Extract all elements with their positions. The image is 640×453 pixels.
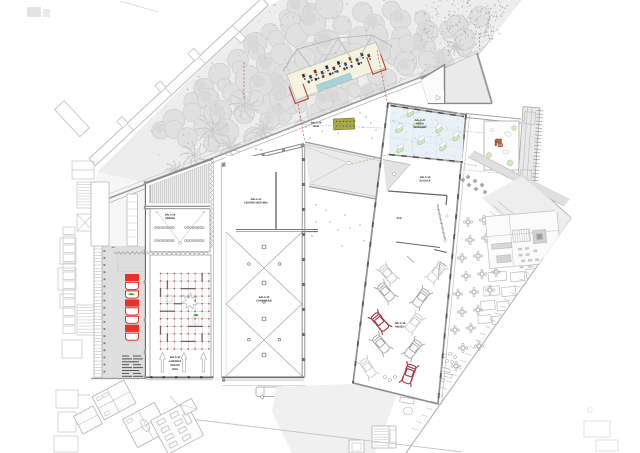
svg-text:CONGRESSI: CONGRESSI <box>256 300 272 303</box>
svg-text:CENTRO HISTORIC: CENTRO HISTORIC <box>244 202 268 205</box>
svg-text:STS: STS <box>396 217 401 220</box>
svg-text:2016: 2016 <box>172 368 178 371</box>
svg-text:SPAZIO: SPAZIO <box>170 364 179 367</box>
svg-text:SCUOLA: SCUOLA <box>420 180 431 183</box>
svg-text:CINEMA: CINEMA <box>165 217 175 220</box>
svg-text:LABORAT: LABORAT <box>169 360 182 363</box>
svg-text:GIARDINO: GIARDINO <box>414 126 427 129</box>
svg-text:SALA 34: SALA 34 <box>170 356 181 359</box>
